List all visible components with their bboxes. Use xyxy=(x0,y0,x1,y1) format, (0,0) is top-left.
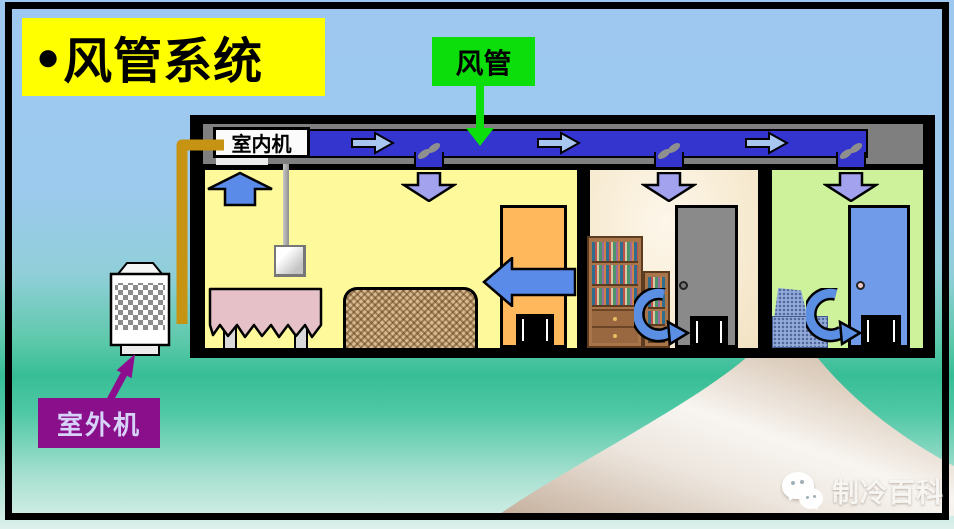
airflow-right-arrow-icon xyxy=(351,131,395,155)
duct-callout-text: 风管 xyxy=(455,42,511,82)
watermark: 制冷百科 xyxy=(782,462,954,518)
door-vent-grille xyxy=(861,315,901,347)
slide-title: ● 风管系统 xyxy=(22,18,325,96)
return-air-left-arrow-icon xyxy=(482,257,577,307)
title-bullet-icon: ● xyxy=(36,37,60,77)
wechat-bubble-small xyxy=(799,488,823,509)
supply-vent-down-arrow-icon xyxy=(823,172,879,202)
thermostat-pole xyxy=(283,164,289,248)
indoor-unit-label: 室内机 xyxy=(213,127,310,158)
supply-vent-down-arrow-icon xyxy=(401,172,457,202)
outdoor-unit-grille xyxy=(115,283,165,330)
damper-icon xyxy=(416,142,442,160)
supply-vent-down-arrow-icon xyxy=(641,172,697,202)
drawer xyxy=(592,309,638,326)
wechat-icon xyxy=(782,467,828,513)
tv-screen-detail xyxy=(546,319,548,341)
door-airflow-curved-arrow-icon xyxy=(806,288,862,348)
vent-slot xyxy=(893,320,895,342)
outdoor-unit-cap xyxy=(118,263,162,274)
wechat-eye xyxy=(800,480,804,484)
table xyxy=(208,287,323,351)
wechat-eye xyxy=(806,496,809,499)
drawer-knob xyxy=(613,334,617,338)
indoor-unit-label-text: 室内机 xyxy=(232,128,292,157)
door-vent-grille xyxy=(690,316,728,347)
wechat-eye xyxy=(813,495,816,498)
wechat-eye xyxy=(791,481,795,485)
airflow-right-arrow-icon xyxy=(745,131,789,155)
sofa xyxy=(343,287,478,348)
airflow-right-arrow-icon xyxy=(537,131,581,155)
duct-callout-arrow-head xyxy=(466,128,494,146)
tv-screen xyxy=(516,314,554,347)
drawer xyxy=(592,326,638,343)
vent-slot xyxy=(867,320,869,342)
vent-slot xyxy=(696,321,698,343)
book-row xyxy=(592,288,638,307)
thermostat xyxy=(274,245,306,277)
outdoor-unit-label: 室外机 xyxy=(38,398,160,448)
duct-callout-arrow-stem xyxy=(476,86,484,130)
refrigerant-pipe xyxy=(168,132,224,328)
slide: 室内机 xyxy=(0,0,954,529)
damper-icon xyxy=(838,142,864,160)
door-airflow-curved-arrow-icon xyxy=(634,288,690,348)
vent-slot xyxy=(720,321,722,343)
drawer-knob xyxy=(613,317,617,321)
book-row xyxy=(592,242,638,263)
duct-callout: 风管 xyxy=(432,37,535,86)
title-text: 风管系统 xyxy=(63,22,263,93)
building: 室内机 xyxy=(190,115,935,358)
outdoor-unit xyxy=(108,260,172,358)
book-row xyxy=(592,265,638,286)
outdoor-unit-label-text: 室外机 xyxy=(57,405,141,442)
tv-screen-detail xyxy=(522,319,524,341)
watermark-text: 制冷百科 xyxy=(832,471,944,510)
bookcase-drawers xyxy=(592,309,638,343)
damper-icon xyxy=(656,142,682,160)
